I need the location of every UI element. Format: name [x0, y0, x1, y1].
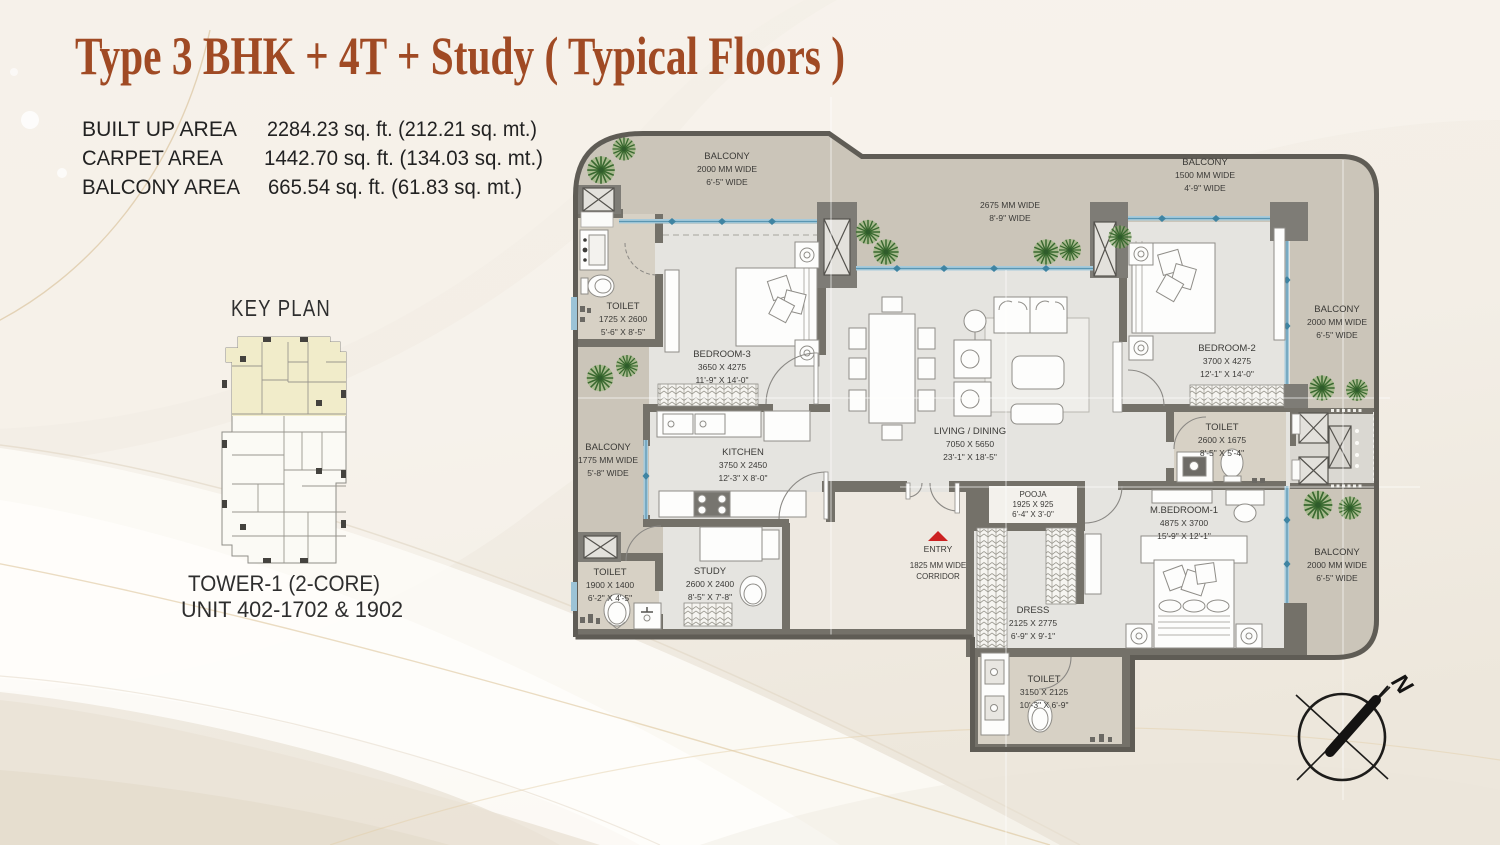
svg-text:BALCONY: BALCONY — [1182, 157, 1228, 168]
svg-text:2125 X 2775: 2125 X 2775 — [1009, 618, 1057, 628]
svg-text:BALCONY: BALCONY — [1314, 547, 1360, 558]
svg-text:6'-9" X 9'-1": 6'-9" X 9'-1" — [1011, 631, 1055, 641]
svg-text:TOILET: TOILET — [593, 567, 626, 578]
svg-text:UNIT 402-1702 & 1902: UNIT 402-1702 & 1902 — [181, 597, 403, 622]
svg-text:DRESS: DRESS — [1017, 605, 1050, 616]
svg-text:3650 X 4275: 3650 X 4275 — [698, 362, 746, 372]
svg-text:3750 X 2450: 3750 X 2450 — [719, 460, 767, 470]
svg-text:665.54 sq. ft. (61.83 sq. mt.): 665.54 sq. ft. (61.83 sq. mt.) — [268, 175, 522, 199]
svg-text:M.BEDROOM-1: M.BEDROOM-1 — [1150, 505, 1218, 516]
svg-text:Type 3 BHK + 4T + Study ( Typi: Type 3 BHK + 4T + Study ( Typical Floors… — [75, 26, 845, 86]
svg-text:2284.23 sq. ft. (212.21 sq. mt: 2284.23 sq. ft. (212.21 sq. mt.) — [267, 117, 537, 141]
svg-text:STUDY: STUDY — [694, 566, 727, 577]
svg-text:23'-1" X 18'-5": 23'-1" X 18'-5" — [943, 452, 997, 462]
svg-text:8'-5" X 7'-8": 8'-5" X 7'-8" — [688, 592, 732, 602]
svg-text:BUILT UP AREA: BUILT UP AREA — [82, 117, 238, 141]
svg-text:6'-2" X 4'-5": 6'-2" X 4'-5" — [588, 593, 632, 603]
svg-text:6'-5" WIDE: 6'-5" WIDE — [706, 177, 748, 187]
svg-text:1825 MM WIDE: 1825 MM WIDE — [910, 561, 966, 570]
svg-text:BALCONY: BALCONY — [704, 151, 750, 162]
svg-text:12'-3" X 8'-0": 12'-3" X 8'-0" — [719, 473, 768, 483]
svg-text:CARPET AREA: CARPET AREA — [82, 146, 224, 170]
svg-text:TOWER-1 (2-CORE): TOWER-1 (2-CORE) — [188, 571, 380, 596]
svg-text:1725 X 2600: 1725 X 2600 — [599, 314, 647, 324]
svg-text:6'-4" X 3'-0": 6'-4" X 3'-0" — [1012, 510, 1054, 519]
svg-text:TOILET: TOILET — [1027, 674, 1060, 685]
svg-text:3150 X 2125: 3150 X 2125 — [1020, 687, 1068, 697]
svg-text:ENTRY: ENTRY — [924, 544, 953, 554]
svg-text:10'-3" X 6'-9": 10'-3" X 6'-9" — [1020, 700, 1069, 710]
svg-text:8'-5" X 5'-4": 8'-5" X 5'-4" — [1200, 448, 1244, 458]
svg-text:KITCHEN: KITCHEN — [722, 447, 764, 458]
svg-text:POOJA: POOJA — [1019, 490, 1047, 499]
svg-text:LIVING / DINING: LIVING / DINING — [934, 426, 1006, 437]
svg-text:15'-9" X 12'-1": 15'-9" X 12'-1" — [1157, 531, 1211, 541]
svg-text:2000 MM WIDE: 2000 MM WIDE — [697, 164, 757, 174]
svg-text:2000 MM WIDE: 2000 MM WIDE — [1307, 560, 1367, 570]
svg-text:1775 MM WIDE: 1775 MM WIDE — [578, 455, 638, 465]
svg-text:BEDROOM-3: BEDROOM-3 — [693, 349, 751, 360]
svg-text:7050 X 5650: 7050 X 5650 — [946, 439, 994, 449]
svg-text:2600 X 2400: 2600 X 2400 — [686, 579, 734, 589]
svg-text:3700 X 4275: 3700 X 4275 — [1203, 356, 1251, 366]
svg-text:2675 MM WIDE: 2675 MM WIDE — [980, 200, 1040, 210]
svg-text:12'-1" X 14'-0": 12'-1" X 14'-0" — [1200, 369, 1254, 379]
svg-text:1500 MM WIDE: 1500 MM WIDE — [1175, 170, 1235, 180]
svg-text:5'-8" WIDE: 5'-8" WIDE — [587, 468, 629, 478]
svg-text:CORRIDOR: CORRIDOR — [916, 572, 960, 581]
svg-text:11'-9" X 14'-0": 11'-9" X 14'-0" — [695, 375, 748, 385]
svg-text:BALCONY: BALCONY — [1314, 304, 1360, 315]
svg-text:4875 X 3700: 4875 X 3700 — [1160, 518, 1208, 528]
svg-text:2000 MM WIDE: 2000 MM WIDE — [1307, 317, 1367, 327]
svg-text:2600 X 1675: 2600 X 1675 — [1198, 435, 1246, 445]
svg-text:6'-5" WIDE: 6'-5" WIDE — [1316, 330, 1358, 340]
svg-text:6'-5" WIDE: 6'-5" WIDE — [1316, 573, 1358, 583]
svg-text:KEY PLAN: KEY PLAN — [231, 295, 331, 321]
svg-text:8'-9" WIDE: 8'-9" WIDE — [989, 213, 1031, 223]
svg-text:1925 X 925: 1925 X 925 — [1013, 500, 1054, 509]
svg-text:TOILET: TOILET — [606, 301, 639, 312]
svg-text:TOILET: TOILET — [1205, 422, 1238, 433]
svg-text:BALCONY AREA: BALCONY AREA — [82, 175, 241, 199]
svg-text:1442.70 sq. ft. (134.03 sq. mt: 1442.70 sq. ft. (134.03 sq. mt.) — [264, 146, 543, 170]
svg-text:5'-6" X 8'-5": 5'-6" X 8'-5" — [601, 327, 645, 337]
svg-text:BALCONY: BALCONY — [585, 442, 631, 453]
svg-text:1900 X 1400: 1900 X 1400 — [586, 580, 634, 590]
svg-text:4'-9" WIDE: 4'-9" WIDE — [1184, 183, 1226, 193]
svg-text:BEDROOM-2: BEDROOM-2 — [1198, 343, 1256, 354]
